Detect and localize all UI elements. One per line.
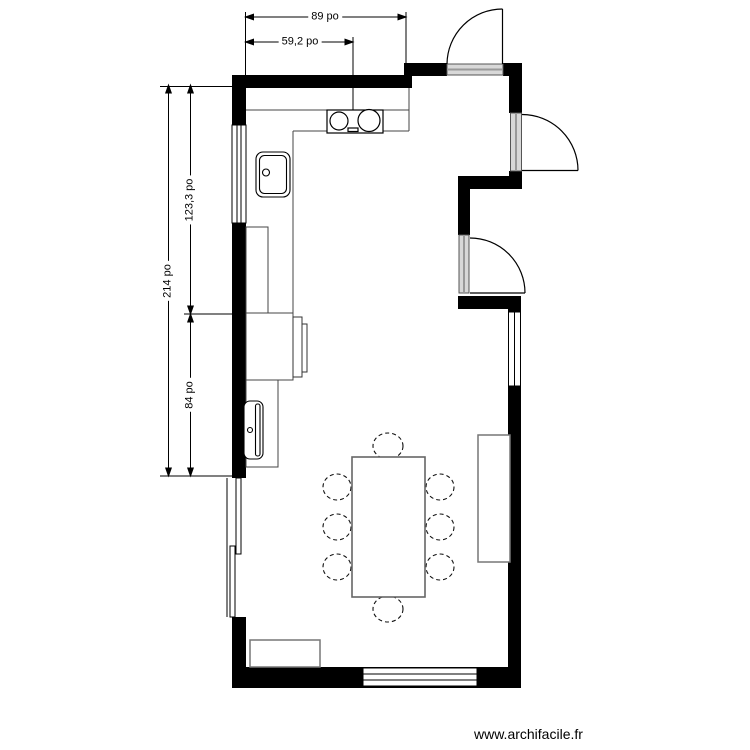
chair[interactable]: [426, 474, 454, 500]
watermark-text: www.archifacile.fr: [474, 726, 583, 742]
dimension-label-left-lower: 84 po: [184, 378, 197, 412]
chair[interactable]: [323, 554, 351, 580]
window-bottom[interactable]: [363, 668, 477, 686]
window-right[interactable]: [509, 312, 521, 386]
tall-cabinet[interactable]: [246, 313, 293, 380]
wall-right-mid[interactable]: [508, 296, 521, 312]
door-right-upper[interactable]: [511, 113, 579, 171]
lower-fixture[interactable]: [244, 401, 263, 459]
chair[interactable]: [323, 474, 351, 500]
bench[interactable]: [250, 640, 320, 667]
doors[interactable]: [447, 9, 578, 293]
wall-top-left[interactable]: [232, 75, 412, 88]
window-left[interactable]: [232, 125, 246, 223]
wall-inner-column[interactable]: [458, 183, 470, 235]
wall-left-lower[interactable]: [232, 617, 246, 688]
cooktop[interactable]: [327, 110, 383, 134]
wall-right-upper[interactable]: [509, 63, 522, 113]
dimension-label-left-total: 214 po: [162, 261, 175, 301]
door-top[interactable]: [447, 9, 503, 75]
sideboard[interactable]: [478, 435, 510, 562]
drain-icon: [263, 169, 270, 176]
chair[interactable]: [373, 596, 403, 622]
chair[interactable]: [426, 554, 454, 580]
dimension-label-top-width: 89 po: [308, 11, 342, 24]
chair[interactable]: [426, 514, 454, 540]
dining-table[interactable]: [352, 457, 425, 597]
door-inner[interactable]: [459, 235, 525, 293]
sliding-door-left[interactable]: [227, 478, 247, 617]
floorplan-drawing: [0, 0, 750, 750]
dimension-label-top-partial: 59,2 po: [279, 36, 322, 49]
chair[interactable]: [373, 433, 403, 459]
wall-left-upper[interactable]: [232, 75, 246, 125]
sink[interactable]: [256, 152, 290, 197]
burner-small: [330, 112, 348, 130]
drain-icon: [248, 428, 253, 433]
wall-top-right-a[interactable]: [404, 63, 447, 76]
appliance-door[interactable]: [293, 317, 307, 377]
chair[interactable]: [323, 514, 351, 540]
floorplan-canvas: 89 po 59,2 po 214 po 123,3 po 84 po www.…: [0, 0, 750, 750]
burner-large: [358, 110, 380, 132]
cooktop-control: [348, 128, 358, 132]
dimension-label-left-upper: 123,3 po: [184, 176, 197, 225]
base-cabinet[interactable]: [246, 227, 268, 313]
kitchen-counter[interactable]: [246, 88, 409, 467]
